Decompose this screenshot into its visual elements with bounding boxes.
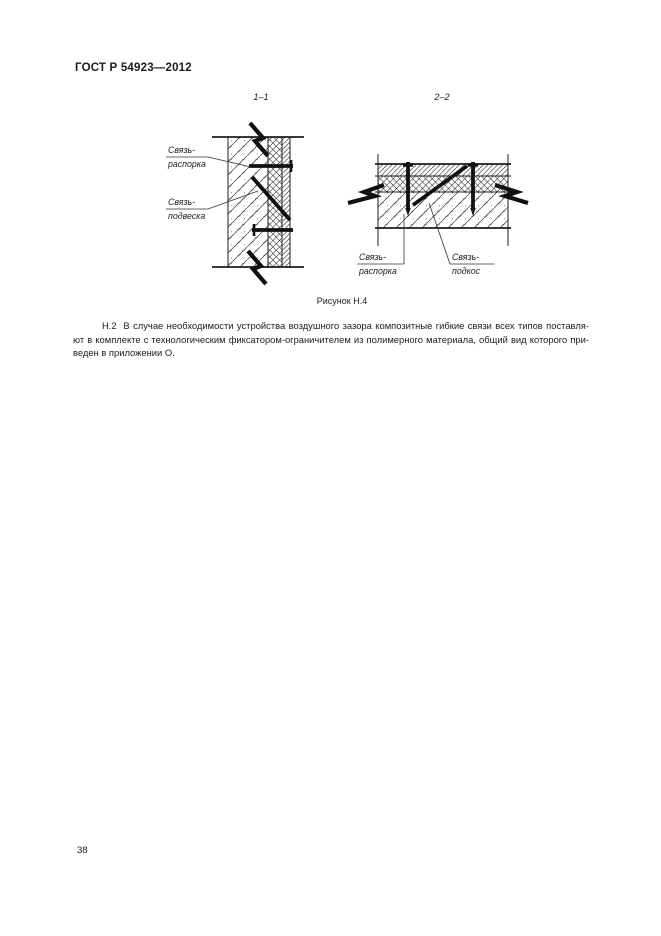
section-title-1-1: 1–1	[253, 92, 268, 102]
label-tie-strut-line1: Связь-	[452, 252, 479, 262]
section-2-2-drawing: 2–2 Связь- распорка Связь-	[348, 92, 528, 276]
page-number: 38	[77, 845, 88, 856]
facing-layer	[282, 137, 290, 267]
clause-line-2: ют в комплекте с технологическим фиксато…	[73, 333, 589, 347]
clause-line-1: Н.2 В случае необходимости устройства во…	[73, 319, 589, 333]
wall-masonry-layer	[378, 192, 508, 228]
wall-masonry-layer	[228, 137, 268, 267]
label-tie-hanger-line2: подвеска	[168, 211, 205, 221]
label-tie-strut-line2: подкос	[452, 266, 481, 276]
page: { "header": { "title": "ГОСТ Р 54923—201…	[0, 0, 661, 936]
figure-h4: 1–1 Связь- распорка Связь- подвеска	[0, 0, 661, 320]
clause-h2-paragraph: Н.2 В случае необходимости устройства во…	[73, 319, 589, 360]
section-title-2-2: 2–2	[433, 92, 449, 102]
label-tie-spacer-line2: распорка	[167, 159, 206, 169]
facing-layer	[378, 164, 508, 176]
label-tie-spacer-line2: распорка	[358, 266, 397, 276]
label-tie-spacer-line1: Связь-	[359, 252, 386, 262]
clause-line-3: веден в приложении О.	[73, 346, 589, 360]
label-tie-hanger-line1: Связь-	[168, 197, 195, 207]
figure-caption: Рисунок Н.4	[242, 296, 442, 306]
section-1-1-drawing: 1–1 Связь- распорка Связь- подвеска	[166, 92, 304, 284]
label-tie-spacer-line1: Связь-	[168, 145, 195, 155]
